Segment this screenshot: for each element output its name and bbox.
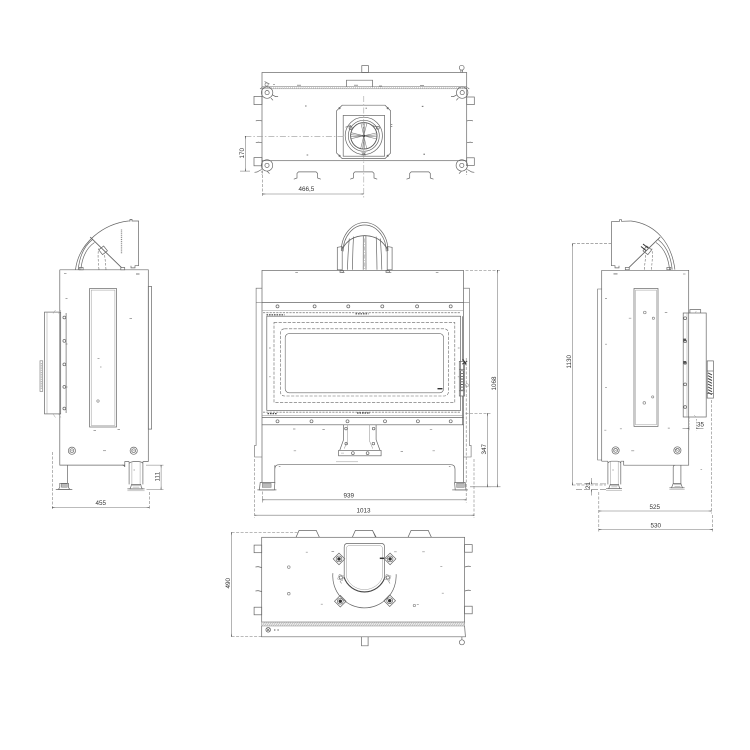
svg-text:1130: 1130 <box>566 354 573 368</box>
svg-text:35: 35 <box>697 421 705 428</box>
svg-text:1013: 1013 <box>357 508 372 515</box>
svg-text:170: 170 <box>239 147 246 158</box>
svg-text:939: 939 <box>344 492 355 499</box>
svg-text:525: 525 <box>650 504 661 511</box>
svg-text:466,5: 466,5 <box>299 186 315 193</box>
svg-text:490: 490 <box>225 577 232 588</box>
svg-text:455: 455 <box>96 500 107 507</box>
svg-text:347: 347 <box>481 443 488 454</box>
svg-text:530: 530 <box>651 522 662 529</box>
svg-text:1068: 1068 <box>491 376 498 391</box>
svg-text:111: 111 <box>155 471 162 481</box>
svg-text:21: 21 <box>585 481 592 489</box>
